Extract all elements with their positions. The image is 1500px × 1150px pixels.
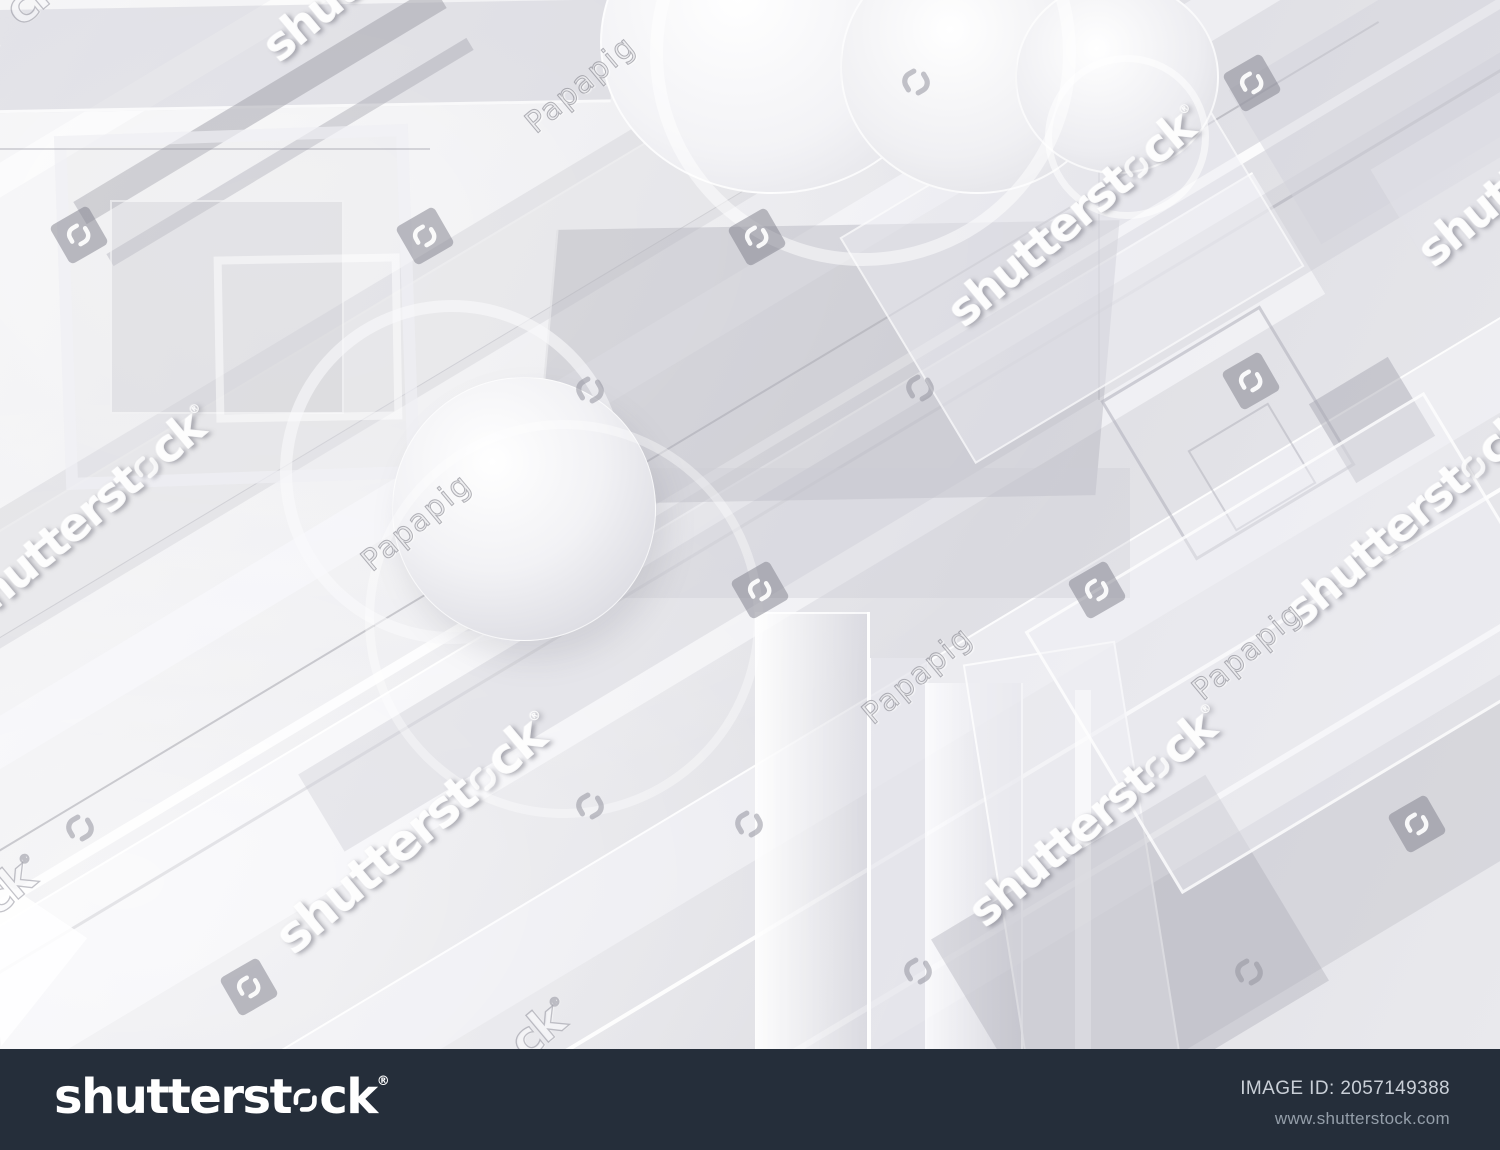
shutterstock-logo: shutterstck® [54, 1073, 390, 1121]
website-url: www.shutterstock.com [1240, 1109, 1450, 1129]
glass-slab [869, 658, 927, 1049]
image-meta: IMAGE ID: 2057149388 www.shutterstock.co… [1240, 1078, 1450, 1129]
registered-trademark: ® [377, 1074, 390, 1089]
image-id-label: IMAGE ID: [1240, 1078, 1334, 1099]
image-id-value: 2057149388 [1340, 1078, 1450, 1099]
footer-bar: shutterstck® IMAGE ID: 2057149388 www.sh… [0, 1049, 1500, 1150]
logo-text-part2: ck [319, 1069, 376, 1125]
image-id: IMAGE ID: 2057149388 [1240, 1078, 1450, 1100]
glass-panel [0, 0, 611, 114]
logo-text-part1: shutterst [54, 1069, 291, 1125]
glass-slab [755, 612, 870, 1049]
glass-line [0, 148, 430, 150]
glass-ring [1045, 55, 1209, 219]
shutterstock-o-glyph-icon [292, 1087, 318, 1113]
glass-ring [365, 420, 763, 818]
abstract-background [0, 0, 1500, 1049]
stock-photo-preview: shutterstck®shutterstck®shutterstck®shut… [0, 0, 1500, 1150]
